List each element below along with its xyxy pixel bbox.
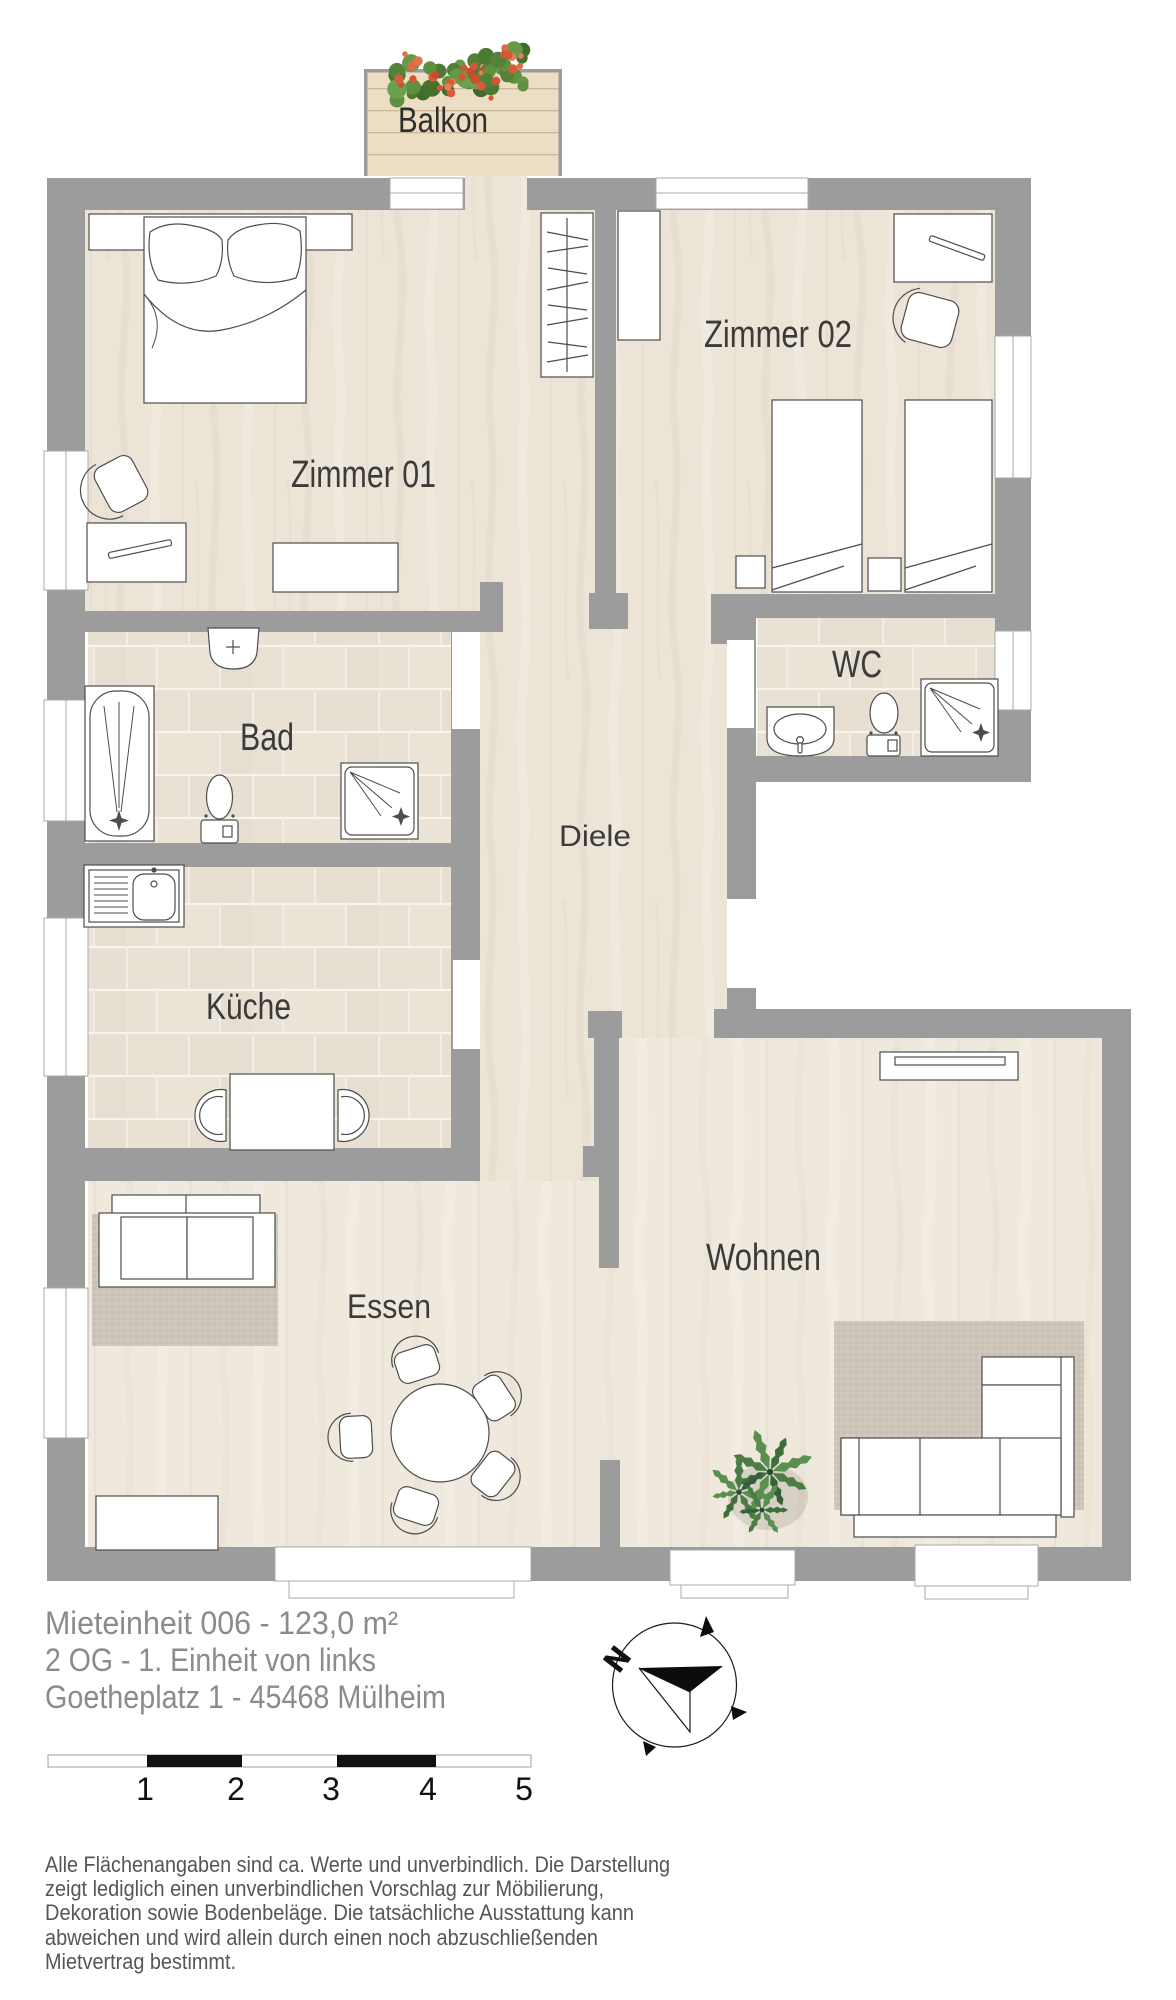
- svg-text:Wohnen: Wohnen: [706, 1237, 821, 1279]
- svg-text:Diele: Diele: [559, 820, 631, 853]
- svg-text:Essen: Essen: [347, 1288, 431, 1326]
- svg-text:Mieteinheit 006 - 123,0 m²: Mieteinheit 006 - 123,0 m²: [45, 1605, 398, 1641]
- svg-text:abweichen und wird allein durc: abweichen und wird allein durch einen no…: [45, 1925, 598, 1950]
- svg-text:WC: WC: [832, 644, 882, 686]
- svg-text:2 OG - 1. Einheit von links: 2 OG - 1. Einheit von links: [45, 1642, 376, 1678]
- svg-text:Dekoration sowie Bodenbeläge.: Dekoration sowie Bodenbeläge. Die tatsäc…: [45, 1900, 634, 1925]
- svg-text:Mietvertrag bestimmt.: Mietvertrag bestimmt.: [45, 1949, 236, 1974]
- svg-text:Bad: Bad: [240, 717, 294, 759]
- svg-text:4: 4: [419, 1771, 437, 1807]
- svg-text:Balkon: Balkon: [398, 101, 488, 140]
- svg-text:Alle Flächenangaben sind ca. W: Alle Flächenangaben sind ca. Werte und u…: [45, 1852, 670, 1877]
- svg-text:1: 1: [136, 1771, 154, 1807]
- svg-text:Küche: Küche: [206, 986, 291, 1027]
- svg-text:Goetheplatz 1 - 45468 Mülheim: Goetheplatz 1 - 45468 Mülheim: [45, 1679, 446, 1715]
- svg-text:3: 3: [322, 1771, 340, 1807]
- svg-text:5: 5: [515, 1771, 533, 1807]
- svg-text:Zimmer 01: Zimmer 01: [291, 454, 436, 496]
- svg-text:2: 2: [227, 1771, 245, 1807]
- svg-text:zeigt lediglich einen unverbin: zeigt lediglich einen unverbindlichen Vo…: [45, 1876, 604, 1901]
- svg-text:Zimmer 02: Zimmer 02: [704, 314, 852, 356]
